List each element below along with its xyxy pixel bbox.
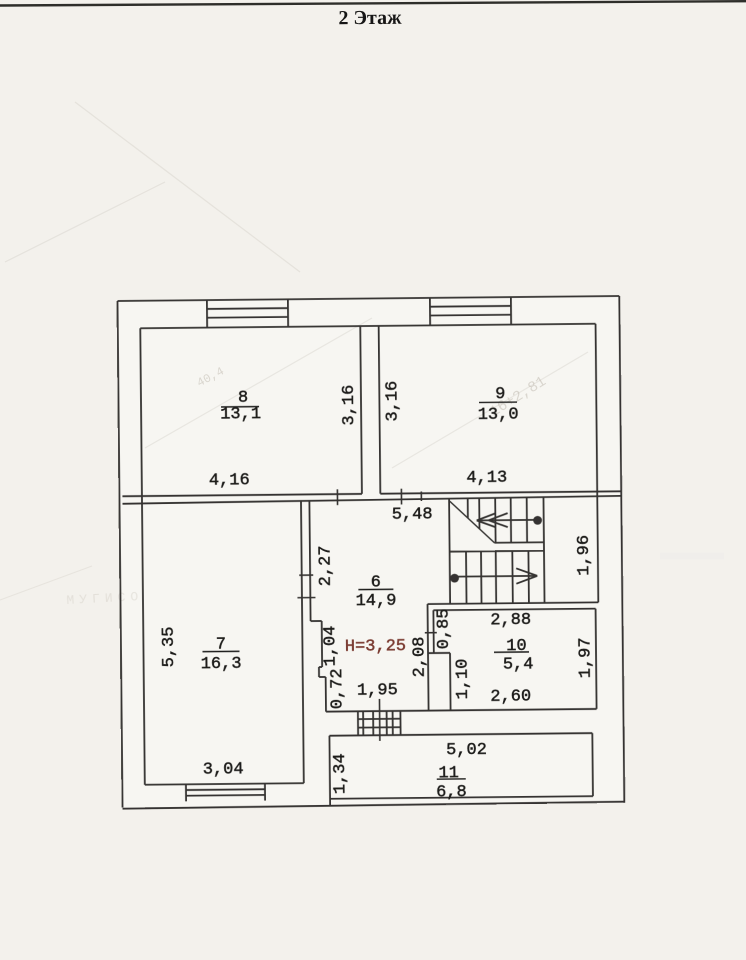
svg-text:10: 10	[506, 637, 527, 656]
svg-text:4,13: 4,13	[466, 469, 507, 488]
svg-text:6,8: 6,8	[436, 783, 467, 802]
svg-text:13,1: 13,1	[220, 405, 261, 424]
svg-text:2,60: 2,60	[490, 688, 531, 707]
svg-text:11: 11	[438, 764, 459, 783]
svg-text:1,95: 1,95	[357, 681, 398, 700]
svg-text:4,16: 4,16	[209, 471, 250, 490]
svg-text:1,34: 1,34	[331, 753, 350, 794]
svg-text:2,88: 2,88	[490, 611, 531, 630]
svg-text:5,48: 5,48	[392, 506, 433, 525]
svg-text:0,72: 0,72	[328, 668, 347, 709]
svg-text:13,0: 13,0	[478, 406, 519, 425]
svg-text:1,04: 1,04	[321, 625, 340, 666]
svg-text:2,08: 2,08	[411, 637, 430, 678]
svg-text:3,16: 3,16	[340, 385, 359, 426]
svg-text:2 Этаж: 2 Этаж	[338, 7, 402, 29]
svg-text:1,97: 1,97	[577, 637, 596, 678]
svg-text:3,04: 3,04	[203, 760, 244, 779]
svg-text:16,3: 16,3	[201, 655, 242, 674]
svg-text:14,9: 14,9	[355, 592, 396, 611]
svg-text:2,27: 2,27	[317, 545, 336, 586]
svg-text:3,16: 3,16	[383, 381, 402, 422]
svg-text:1,96: 1,96	[575, 535, 594, 576]
svg-text:Н=3,25: Н=3,25	[345, 637, 406, 657]
svg-text:1,10: 1,10	[453, 659, 472, 700]
svg-text:5,35: 5,35	[160, 626, 179, 667]
svg-text:5,4: 5,4	[503, 656, 534, 675]
svg-text:0,85: 0,85	[435, 608, 454, 649]
svg-text:5,02: 5,02	[446, 741, 487, 760]
